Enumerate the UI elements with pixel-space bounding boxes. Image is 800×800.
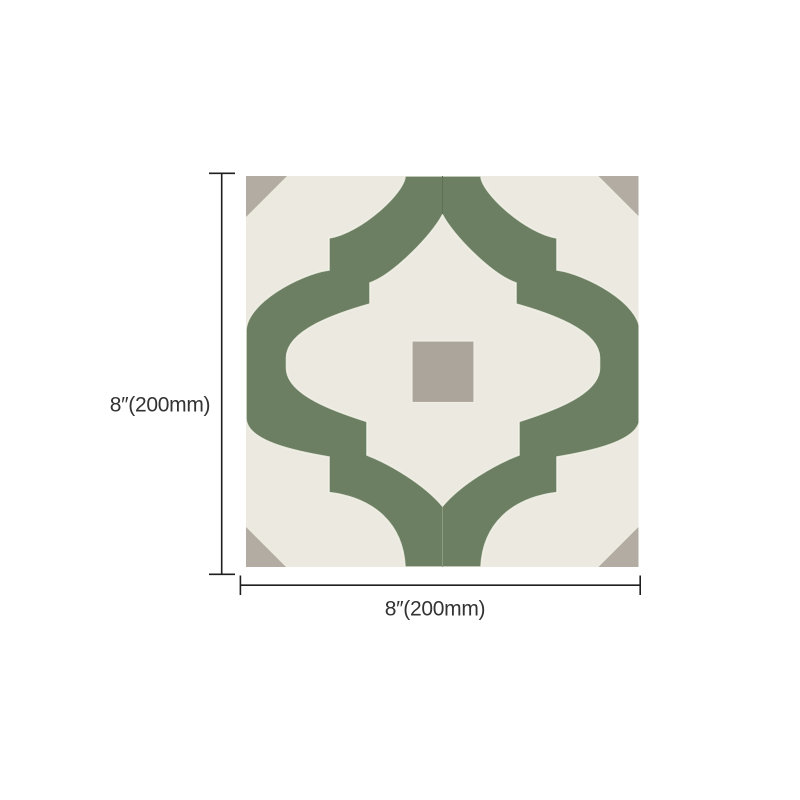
svg-text:8″(200mm): 8″(200mm) — [385, 598, 485, 621]
svg-text:8″(200mm): 8″(200mm) — [110, 394, 210, 417]
